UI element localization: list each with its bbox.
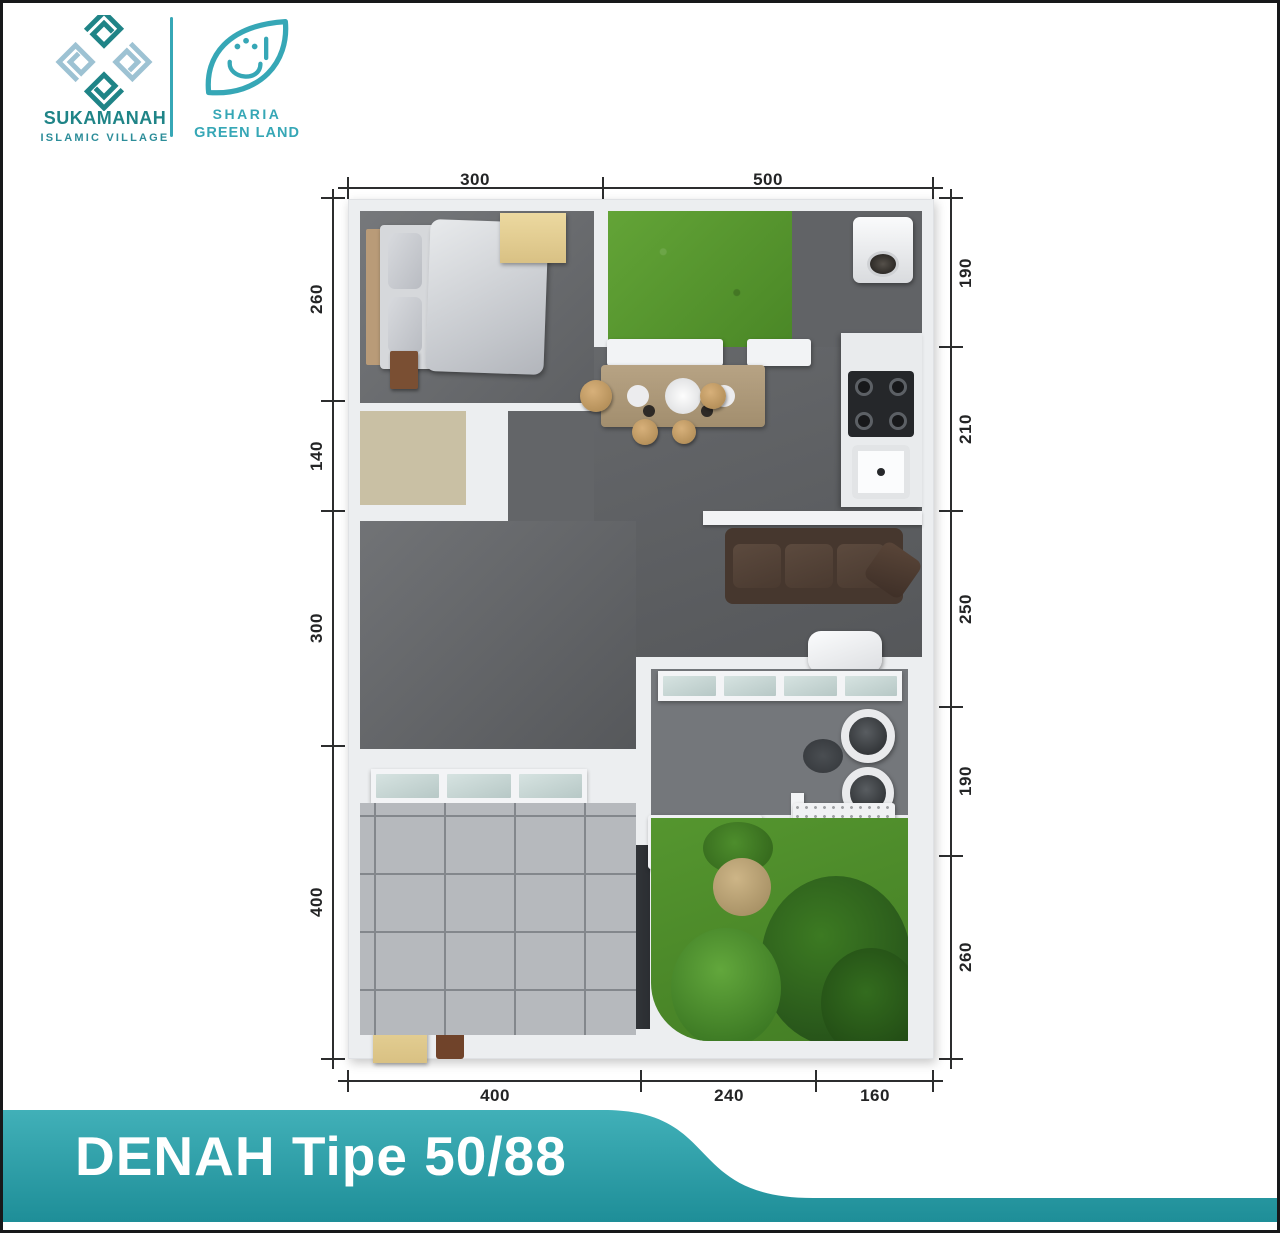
banner-title: DENAH Tipe 50/88 (75, 1129, 567, 1184)
bush (671, 928, 781, 1041)
dim-top-500: 500 (753, 170, 783, 190)
sukamanah-title: SUKAMANAH (17, 109, 193, 127)
dining-table (601, 365, 765, 427)
sofa-cushion (733, 544, 781, 588)
dim-bottom-400: 400 (480, 1086, 510, 1106)
washing-machine-door (867, 251, 899, 277)
bowl (643, 405, 655, 417)
sharia-line2: GREEN LAND (188, 125, 306, 141)
dining-stool (580, 380, 612, 412)
planter-tub (841, 709, 895, 763)
bathroom-floor (360, 411, 466, 505)
glass-canopy (371, 769, 587, 803)
knot-arm-right (116, 45, 149, 78)
kitchen-sink (852, 445, 910, 499)
dim-left-300: 300 (307, 613, 327, 643)
floorplan-poster: SUKAMANAH ISLAMIC VILLAGE SHARIA GREEN L… (0, 0, 1280, 1233)
coffee-table (808, 631, 882, 673)
dining-stool (672, 420, 696, 444)
sukamanah-logo-text: SUKAMANAH ISLAMIC VILLAGE (17, 109, 193, 144)
kitchen-counter (747, 339, 811, 366)
sharia-line1: SHARIA (188, 107, 306, 121)
dining-stool (632, 419, 658, 445)
sukamanah-knot-icon (45, 15, 163, 111)
dim-right-190b: 190 (956, 766, 976, 796)
plate (665, 378, 701, 414)
bedroom-2-floor (360, 521, 636, 749)
glass-canopy (658, 671, 902, 701)
dim-right-260: 260 (956, 942, 976, 972)
sukamanah-subtitle: ISLAMIC VILLAGE (17, 132, 193, 144)
logo-divider (170, 17, 173, 137)
dim-bottom-240: 240 (714, 1086, 744, 1106)
dim-left-260: 260 (307, 284, 327, 314)
knot-arm-bottom (87, 75, 120, 108)
stone-seat (803, 739, 843, 773)
washing-machine (853, 217, 913, 283)
kitchen-counter (607, 339, 723, 366)
leaf-outline (208, 22, 285, 93)
dining-stool (700, 383, 726, 409)
bed-1-pillow (388, 233, 422, 289)
leaf-script-bowl (230, 62, 261, 77)
knot-arm-top (87, 15, 120, 45)
dim-right-250: 250 (956, 594, 976, 624)
nightstand (390, 351, 418, 389)
dim-right-190a: 190 (956, 258, 976, 288)
carport-tiled-floor (360, 803, 636, 1035)
dim-right-210: 210 (956, 414, 976, 444)
garden-stone (713, 858, 771, 916)
knot-arm-left (59, 45, 92, 78)
sharia-leaf-icon (201, 15, 293, 101)
sofa-cushion (785, 544, 833, 588)
plate (627, 385, 649, 407)
leaf-script-dots (235, 38, 258, 50)
courtyard-grass (608, 211, 792, 347)
dim-top-300: 300 (460, 170, 490, 190)
dim-bottom-160: 160 (860, 1086, 890, 1106)
stove-cooktop (848, 371, 914, 437)
hallway-floor (508, 411, 594, 521)
dim-left-140: 140 (307, 441, 327, 471)
garden (651, 818, 908, 1041)
sharia-logo-text: SHARIA GREEN LAND (188, 107, 306, 141)
bed-1-pillow (388, 297, 422, 353)
floorplan-render (348, 199, 934, 1059)
sofa (725, 528, 903, 604)
dim-left-400: 400 (307, 887, 327, 917)
interior-wall (703, 511, 922, 525)
wardrobe-1 (500, 213, 566, 263)
